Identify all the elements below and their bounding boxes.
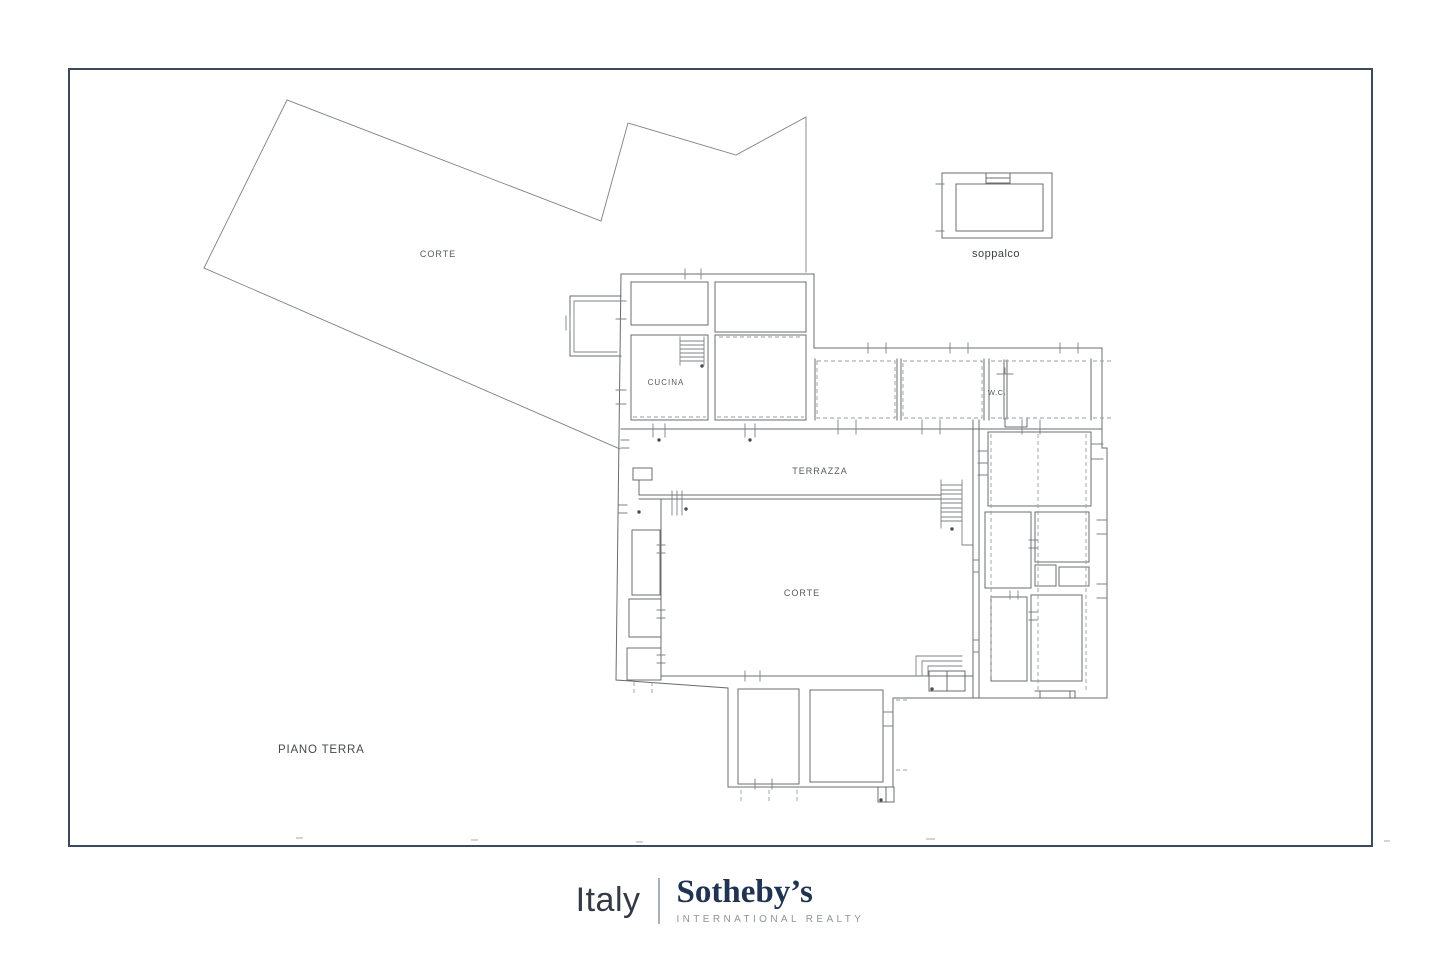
label-soppalco: soppalco [972,248,1020,260]
floor-plan-svg: CORTE CUCINA TERRAZZA W.C. CORTE soppalc… [0,0,1440,960]
page: { "page": { "background": "#ffffff" }, "… [0,0,1440,960]
brand-name: Sotheby’s [677,876,813,909]
label-wc: W.C. [988,388,1006,397]
brand-footer: Italy Sotheby’s INTERNATIONAL REALTY [0,876,1440,925]
brand-block: Sotheby’s INTERNATIONAL REALTY [677,876,865,925]
soppalco-plan [936,173,1052,238]
label-cucina: CUCINA [648,378,685,387]
label-piano-terra: PIANO TERRA [278,744,365,756]
reference-dots [637,364,953,801]
building-walls [570,274,1107,802]
brand-subtitle: INTERNATIONAL REALTY [677,914,865,925]
door-window-marks [566,269,1078,789]
label-terrazza: TERRAZZA [792,466,848,476]
label-corte-courtyard: CORTE [784,588,820,598]
dashed-details [633,337,1112,801]
label-corte-large: CORTE [420,249,456,259]
brand-country: Italy [576,881,641,920]
brand-divider [658,878,660,924]
faint-marks [296,837,1390,843]
